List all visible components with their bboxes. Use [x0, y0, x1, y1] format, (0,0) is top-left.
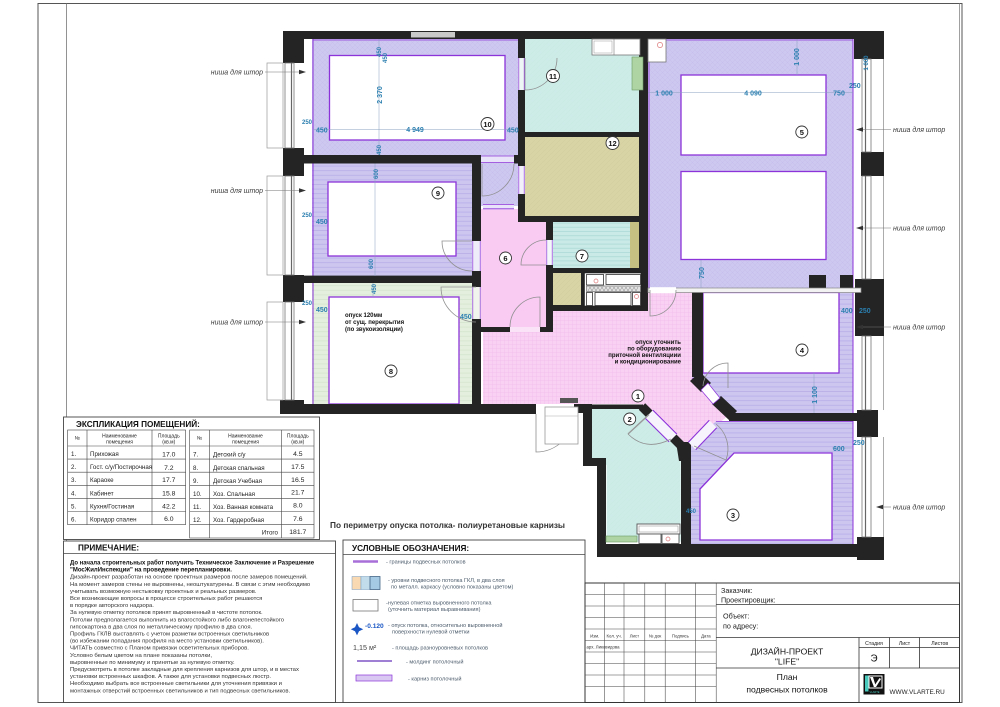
- svg-text:ниша для штор: ниша для штор: [893, 126, 945, 134]
- svg-text:250: 250: [853, 440, 865, 447]
- svg-text:№ док: № док: [649, 634, 662, 639]
- svg-text:(уточнить материал выравнивани: (уточнить материал выравнивания): [388, 607, 481, 613]
- svg-text:по адресу:: по адресу:: [723, 622, 758, 631]
- svg-text:выровненные по минимуму и прин: выровненные по минимуму и принятые за ну…: [70, 660, 235, 666]
- svg-text:Гост. с/у/Постирочная: Гост. с/у/Постирочная: [90, 464, 152, 471]
- svg-text:ниша для штор: ниша для штор: [893, 504, 945, 512]
- svg-text:1 100: 1 100: [812, 386, 819, 404]
- svg-text:Лист: Лист: [630, 634, 639, 639]
- svg-text:ниша для штор: ниша для штор: [893, 225, 945, 233]
- svg-text:поверхности нулевой отметки: поверхности нулевой отметки: [392, 629, 470, 636]
- svg-text:ниша для штор: ниша для штор: [211, 69, 263, 77]
- svg-text:Дизайн-проект разработан на ос: Дизайн-проект разработан на основе проек…: [70, 574, 308, 581]
- svg-text:9.: 9.: [193, 478, 198, 485]
- svg-text:Дата: Дата: [701, 634, 711, 639]
- svg-text:3: 3: [731, 511, 735, 520]
- svg-text:(кв.м): (кв.м): [162, 440, 175, 446]
- svg-text:от сущ. перекрытия: от сущ. перекрытия: [345, 320, 405, 326]
- svg-text:Кол. уч.: Кол. уч.: [607, 634, 622, 639]
- svg-text:"МосЖилИнспекции" на проведени: "МосЖилИнспекции" на проведение переплан…: [70, 568, 232, 574]
- svg-text:17.0: 17.0: [162, 452, 175, 459]
- svg-text:арх. Ликовидова: арх. Ликовидова: [587, 645, 621, 650]
- svg-text:17.7: 17.7: [162, 477, 175, 484]
- svg-text:6.: 6.: [71, 517, 76, 524]
- svg-text:3.: 3.: [71, 477, 76, 484]
- svg-text:(по звукоизоляции): (по звукоизоляции): [345, 327, 403, 333]
- svg-text:Итого: Итого: [262, 530, 279, 537]
- svg-text:450: 450: [316, 219, 328, 226]
- svg-text:УСЛОВНЫЕ ОБОЗНАЧЕНИЯ:: УСЛОВНЫЕ ОБОЗНАЧЕНИЯ:: [352, 544, 469, 553]
- svg-text:450: 450: [686, 509, 697, 515]
- svg-text:12.: 12.: [193, 517, 202, 524]
- svg-text:(во избежании попадания профил: (во избежании попадания профиля на место…: [70, 639, 264, 645]
- svg-text:Объект:: Объект:: [723, 612, 749, 621]
- svg-text:10: 10: [483, 120, 491, 129]
- svg-text:установки встроенных шкафов. А: установки встроенных шкафов. А также для…: [70, 674, 271, 680]
- svg-text:Стадия: Стадия: [865, 641, 883, 647]
- svg-text:помещения: помещения: [232, 440, 259, 446]
- svg-text:250: 250: [849, 83, 861, 90]
- svg-text:(кв.м): (кв.м): [291, 440, 304, 446]
- svg-text:5: 5: [800, 128, 804, 137]
- svg-text:по металл. каркасу (условно по: по металл. каркасу (условно показаны цве…: [391, 585, 513, 591]
- svg-text:1 000: 1 000: [794, 48, 801, 66]
- svg-text:№: №: [75, 436, 80, 442]
- svg-text:- карниз потолочный: - карниз потолочный: [408, 676, 462, 683]
- svg-text:Детская спальная: Детская спальная: [213, 465, 265, 472]
- svg-text:Предусмотреть в потолке заклад: Предусмотреть в потолке закладные для кр…: [70, 667, 299, 673]
- svg-text:2.: 2.: [71, 464, 76, 471]
- svg-text:6.0: 6.0: [164, 516, 174, 523]
- svg-text:Караоке: Караоке: [90, 477, 114, 484]
- svg-text:Коридор спален: Коридор спален: [90, 517, 137, 524]
- svg-text:- молдинг потолочный: - молдинг потолочный: [406, 659, 464, 666]
- svg-text:5.: 5.: [71, 503, 76, 510]
- svg-text:На момент замеров стены не выр: На момент замеров стены не выровнены, не…: [70, 582, 311, 588]
- svg-text:ДИЗАЙН-ПРОЕКТ: ДИЗАЙН-ПРОЕКТ: [751, 646, 824, 657]
- svg-text:Детская Учебная: Детская Учебная: [213, 478, 262, 485]
- svg-text:- опуск потолка, относительно: - опуск потолка, относительно выровненно…: [388, 622, 502, 629]
- svg-text:подвесных потолков: подвесных потолков: [746, 685, 828, 695]
- svg-text:9: 9: [436, 189, 440, 198]
- svg-text:Профиль ГКЛВ выставлять с учет: Профиль ГКЛВ выставлять с учетом разметк…: [70, 632, 269, 638]
- svg-text:600: 600: [833, 446, 845, 453]
- svg-text:7.2: 7.2: [164, 465, 174, 472]
- svg-text:- границы подвесных потолков: - границы подвесных потолков: [386, 560, 466, 566]
- svg-text:и кондиционирование: и кондиционирование: [615, 360, 682, 366]
- svg-text:450: 450: [460, 314, 472, 321]
- svg-text:450: 450: [377, 144, 383, 155]
- svg-text:Прихожая: Прихожая: [90, 451, 119, 458]
- svg-text:10.: 10.: [193, 491, 202, 498]
- svg-text:12: 12: [608, 139, 616, 148]
- svg-text:- площадь разноуровневых потол: - площадь разноуровневых потолков: [392, 646, 488, 652]
- svg-text:8.0: 8.0: [293, 503, 303, 510]
- svg-text:по оборудованию: по оборудованию: [627, 346, 681, 353]
- svg-text:21.7: 21.7: [291, 490, 304, 497]
- svg-text:11.: 11.: [193, 504, 201, 511]
- svg-text:Э: Э: [870, 654, 877, 665]
- svg-text:ЧИТАТЬ совместно с Планом прив: ЧИТАТЬ совместно с Планом привязки освет…: [70, 646, 249, 652]
- svg-text:монтажных отверстий встроенных: монтажных отверстий встроенных светильни…: [70, 687, 291, 694]
- svg-text:8.: 8.: [193, 465, 198, 472]
- svg-text:7.6: 7.6: [293, 516, 303, 523]
- svg-text:ниша для штор: ниша для штор: [211, 187, 263, 195]
- svg-text:16.5: 16.5: [291, 477, 304, 484]
- svg-text:№: №: [197, 436, 202, 442]
- svg-text:1.: 1.: [71, 451, 76, 458]
- svg-text:Листов: Листов: [931, 641, 948, 647]
- svg-text:42.2: 42.2: [162, 503, 175, 510]
- svg-text:- уровни подвесного потолка ГК: - уровни подвесного потолка ГКЛ, в два с…: [388, 578, 505, 584]
- svg-text:2 370: 2 370: [377, 86, 384, 104]
- svg-text:в порядке авторского надзора.: в порядке авторского надзора.: [70, 603, 154, 609]
- svg-text:1 000: 1 000: [864, 55, 870, 71]
- svg-text:гипсокартона в два слоя по м: гипсокартона в два слоя по металлическом…: [70, 624, 253, 630]
- svg-text:Лист: Лист: [899, 641, 911, 647]
- svg-text:6: 6: [503, 254, 507, 263]
- svg-text:VLARTE: VLARTE: [869, 690, 879, 694]
- svg-text:опуск уточнить: опуск уточнить: [635, 340, 681, 346]
- svg-text:250: 250: [302, 301, 313, 307]
- svg-text:ниша для штор: ниша для штор: [211, 319, 263, 327]
- svg-text:ниша для штор: ниша для штор: [893, 324, 945, 332]
- svg-text:4 090: 4 090: [744, 91, 762, 98]
- svg-text:Кабинет: Кабинет: [90, 490, 114, 497]
- svg-text:600: 600: [369, 258, 375, 269]
- svg-text:7.: 7.: [193, 452, 198, 459]
- svg-text:-нулевая отметка выровненного: -нулевая отметка выровненного потолка: [386, 601, 492, 607]
- svg-text:За нулевую отметку потолков пр: За нулевую отметку потолков принят выров…: [70, 609, 263, 616]
- svg-text:"LIFE": "LIFE": [775, 657, 799, 667]
- svg-text:Подпись: Подпись: [672, 634, 690, 639]
- svg-text:4.: 4.: [71, 490, 76, 497]
- svg-text:До начала строительных работ п: До начала строительных работ получить Те…: [70, 560, 315, 567]
- svg-text:учитывать возможную нестыковку: учитывать возможную нестыковку проектных…: [70, 589, 257, 595]
- svg-text:1 000: 1 000: [655, 91, 673, 98]
- svg-text:Условно белым цветом на плане: Условно белым цветом на плане показаны п…: [70, 653, 212, 659]
- svg-text:750: 750: [699, 267, 706, 279]
- svg-text:Потолки предполагается выполни: Потолки предполагается выполнить из влаг…: [70, 616, 285, 623]
- svg-text:Хоз. Спальная: Хоз. Спальная: [213, 491, 255, 498]
- svg-text:1: 1: [636, 392, 640, 401]
- svg-text:2: 2: [628, 415, 632, 424]
- svg-text:ЭКСПЛИКАЦИЯ ПОМЕЩЕНИЙ:: ЭКСПЛИКАЦИЯ ПОМЕЩЕНИЙ:: [76, 418, 200, 429]
- svg-text:1,15 м²: 1,15 м²: [353, 643, 377, 652]
- svg-text:Детский с/у: Детский с/у: [213, 452, 246, 459]
- svg-text:250: 250: [302, 120, 313, 126]
- svg-text:WWW.VLARTE.RU: WWW.VLARTE.RU: [890, 689, 946, 696]
- svg-text:750: 750: [833, 91, 845, 98]
- svg-text:400: 400: [841, 308, 853, 315]
- svg-text:450: 450: [316, 307, 328, 314]
- svg-text:ПРИМЕЧАНИЕ:: ПРИМЕЧАНИЕ:: [78, 544, 139, 553]
- svg-text:8: 8: [389, 367, 393, 376]
- svg-text:-0.120: -0.120: [365, 623, 384, 630]
- svg-text:450: 450: [316, 128, 328, 135]
- svg-text:17.5: 17.5: [291, 464, 304, 471]
- svg-text:7: 7: [580, 252, 584, 261]
- svg-text:450: 450: [383, 52, 389, 63]
- svg-text:Все возникающие вопросы в проц: Все возникающие вопросы в процессе строи…: [70, 596, 262, 602]
- svg-text:450: 450: [507, 128, 519, 135]
- svg-text:Изм.: Изм.: [590, 634, 599, 639]
- svg-text:250: 250: [302, 213, 313, 219]
- svg-text:600: 600: [374, 168, 380, 179]
- svg-text:Хоз. Ванная комната: Хоз. Ванная комната: [213, 504, 274, 511]
- svg-text:План: План: [777, 672, 798, 682]
- svg-text:Проектировщик:: Проектировщик:: [721, 596, 776, 605]
- svg-text:11: 11: [549, 72, 557, 81]
- svg-text:опуск 120мм: опуск 120мм: [345, 313, 383, 319]
- svg-text:помещения: помещения: [106, 440, 133, 446]
- svg-text:4 949: 4 949: [406, 127, 424, 134]
- svg-text:15.8: 15.8: [162, 490, 175, 497]
- svg-text:181.7: 181.7: [289, 529, 306, 536]
- svg-text:Заказчик:: Заказчик:: [721, 586, 753, 595]
- svg-text:Кухня/Гостиная: Кухня/Гостиная: [90, 503, 134, 510]
- svg-text:4.5: 4.5: [293, 451, 303, 458]
- svg-text:приточной вентиляциии: приточной вентиляциии: [608, 352, 681, 359]
- svg-text:По периметру опуска потолка- п: По периметру опуска потолка- полиуретано…: [330, 520, 565, 530]
- svg-text:Хоз. Гардеробная: Хоз. Гардеробная: [213, 517, 264, 524]
- svg-text:450: 450: [372, 283, 378, 294]
- svg-text:Необходимо выбрать все встрое: Необходимо выбрать все встроенные светил…: [70, 681, 282, 687]
- svg-text:250: 250: [859, 308, 871, 315]
